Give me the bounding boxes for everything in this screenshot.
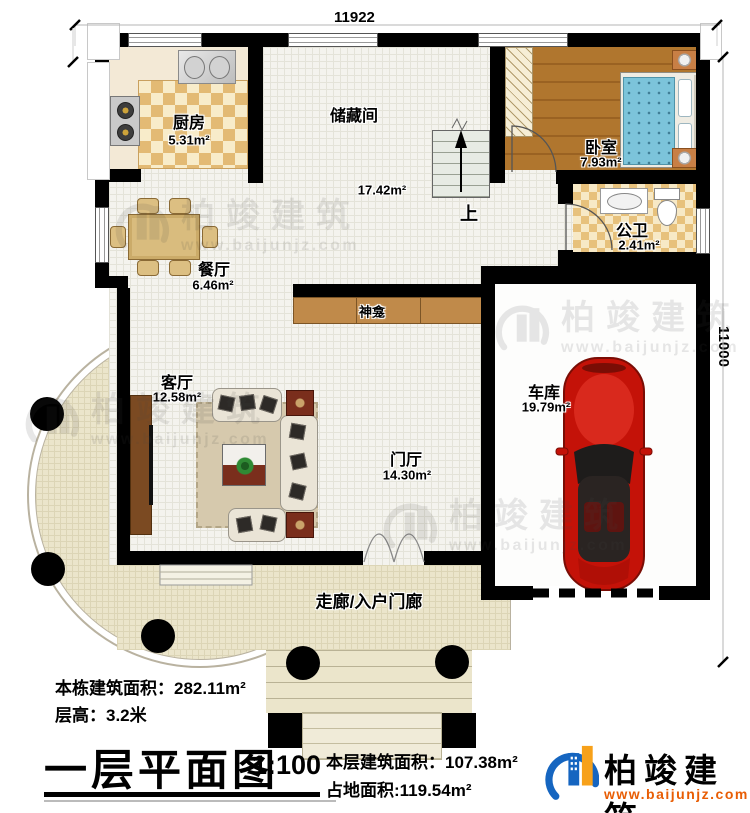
end-table — [286, 512, 314, 538]
stove — [110, 96, 140, 146]
mattress — [623, 77, 675, 165]
title-underline-thick — [44, 792, 320, 797]
kitchen-sink — [178, 50, 236, 84]
dimension-top: 11922 — [334, 9, 375, 26]
dining-chair — [202, 226, 218, 248]
sink-bowl — [607, 193, 642, 210]
label-dining-area: 6.46m² — [192, 278, 233, 293]
label-kitchen-area: 5.31m² — [168, 133, 209, 148]
plan-scale: 1:100 — [252, 750, 321, 781]
title-underline-thin — [44, 800, 336, 802]
brand-logo-icon — [545, 740, 599, 804]
label-storage-area: 17.42m² — [358, 183, 406, 198]
dining-table — [128, 214, 200, 260]
sofa-bottom — [228, 508, 286, 542]
dining-chair — [169, 198, 191, 214]
bath-sink — [600, 188, 648, 214]
stat-building-total-area: 本栋建筑面积：282.11m² — [55, 674, 246, 699]
plan-title: 一层平面图 — [44, 736, 279, 798]
wall — [248, 33, 263, 183]
dining-chair — [137, 260, 159, 276]
wall — [556, 170, 710, 184]
dining-chair — [169, 260, 191, 276]
car — [554, 352, 654, 597]
square-pier — [442, 713, 476, 748]
wall — [95, 276, 128, 288]
stat-floor-area: 本层建筑面积：107.38m² — [326, 748, 518, 773]
wall — [117, 288, 130, 565]
sink-basin — [209, 56, 230, 79]
label-stairs-up: 上 — [460, 200, 478, 226]
label-foyer-name: 门厅 — [390, 446, 422, 470]
brand-website: www.baijunjz.com — [604, 786, 749, 802]
stat-footprint-area: 占地面积:119.54m² — [326, 776, 472, 801]
toilet-tank — [654, 188, 680, 200]
shrine-cabinet — [293, 297, 483, 324]
column — [286, 646, 320, 680]
staircase — [432, 130, 490, 198]
dimension-box — [700, 23, 722, 60]
end-table — [286, 390, 314, 416]
label-bedroom-area: 7.93m² — [580, 155, 621, 170]
window — [478, 33, 568, 47]
wardrobe-hatch — [505, 47, 533, 137]
label-living-area: 12.58m² — [153, 390, 201, 405]
window — [128, 33, 202, 47]
column — [435, 645, 469, 679]
toilet-bowl — [657, 200, 677, 226]
stat-floor-height: 层高：3.2米 — [55, 701, 147, 726]
plant — [235, 456, 255, 476]
sofa-right — [280, 415, 318, 511]
column — [31, 552, 65, 586]
window — [696, 208, 710, 254]
dimension-right: 11000 — [715, 326, 732, 367]
wall — [659, 586, 710, 600]
wall — [696, 33, 710, 600]
burner — [117, 102, 134, 119]
brand-name: 柏竣建筑 — [604, 744, 750, 813]
dimension-box — [87, 62, 110, 180]
wall — [481, 586, 533, 600]
wall — [117, 551, 363, 565]
floor-plan-canvas: 厨房 5.31m² 储藏间 17.42m² 卧室 7.93m² 公卫 2.41m… — [0, 0, 750, 813]
wall — [558, 252, 710, 266]
wall — [481, 266, 710, 284]
wall — [293, 284, 483, 297]
dining-chair — [137, 198, 159, 214]
label-shrine: 神龛 — [359, 302, 385, 321]
pillow — [678, 79, 692, 117]
porch-corridor-strip — [117, 565, 511, 650]
sink-basin — [184, 56, 205, 79]
label-foyer-area: 14.30m² — [383, 468, 431, 483]
coffee-table — [222, 444, 266, 486]
nightstand — [672, 50, 697, 70]
toilet — [654, 188, 680, 230]
label-bathroom-area: 2.41m² — [618, 238, 659, 253]
dimension-box — [87, 23, 120, 60]
wall — [558, 184, 573, 204]
label-storage-name: 储藏间 — [330, 102, 378, 126]
column — [30, 397, 64, 431]
window — [95, 207, 109, 263]
window — [288, 33, 378, 47]
label-dining-name: 餐厅 — [198, 256, 230, 280]
square-pier — [268, 713, 302, 748]
label-garage-area: 19.79m² — [522, 400, 570, 415]
label-corridor: 走廊/入户门廊 — [316, 588, 423, 613]
burner — [117, 124, 134, 141]
dining-chair — [110, 226, 126, 248]
sofa-top — [212, 388, 282, 422]
tv — [149, 425, 153, 505]
column — [141, 619, 175, 653]
wall — [490, 33, 505, 183]
nightstand — [672, 148, 697, 168]
wall — [481, 284, 495, 600]
label-kitchen-name: 厨房 — [173, 109, 205, 133]
